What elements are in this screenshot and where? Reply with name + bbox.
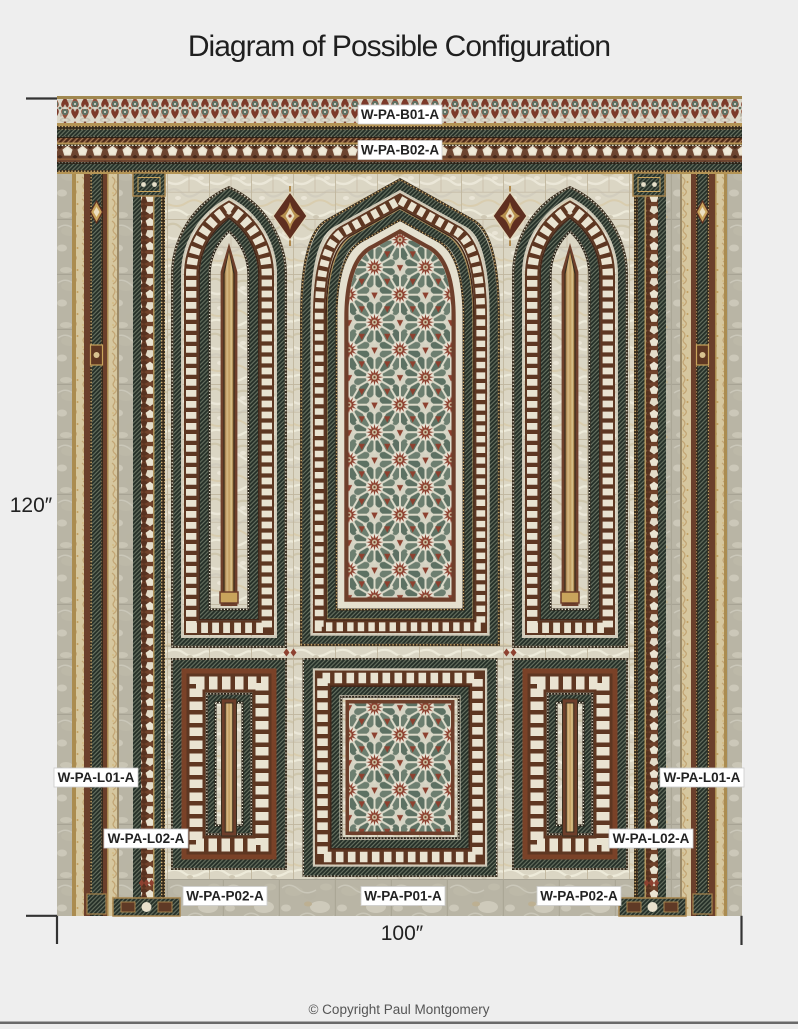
svg-text:120″: 120″ — [10, 494, 53, 517]
svg-text:W-PA-L02-A: W-PA-L02-A — [108, 831, 185, 846]
svg-text:© Copyright Paul Montgomery: © Copyright Paul Montgomery — [308, 1002, 489, 1017]
svg-text:W-PA-P02-A: W-PA-P02-A — [540, 889, 618, 904]
svg-text:W-PA-L01-A: W-PA-L01-A — [664, 770, 741, 785]
svg-text:W-PA-B01-A: W-PA-B01-A — [361, 107, 439, 122]
svg-text:W-PA-P02-A: W-PA-P02-A — [186, 889, 264, 904]
svg-text:W-PA-B02-A: W-PA-B02-A — [361, 143, 439, 158]
svg-text:Diagram of Possible Configurat: Diagram of Possible Configuration — [188, 30, 610, 63]
svg-text:100″: 100″ — [381, 922, 424, 945]
svg-text:W-PA-L01-A: W-PA-L01-A — [58, 770, 135, 785]
svg-text:W-PA-L02-A: W-PA-L02-A — [613, 831, 690, 846]
svg-text:W-PA-P01-A: W-PA-P01-A — [364, 889, 442, 904]
